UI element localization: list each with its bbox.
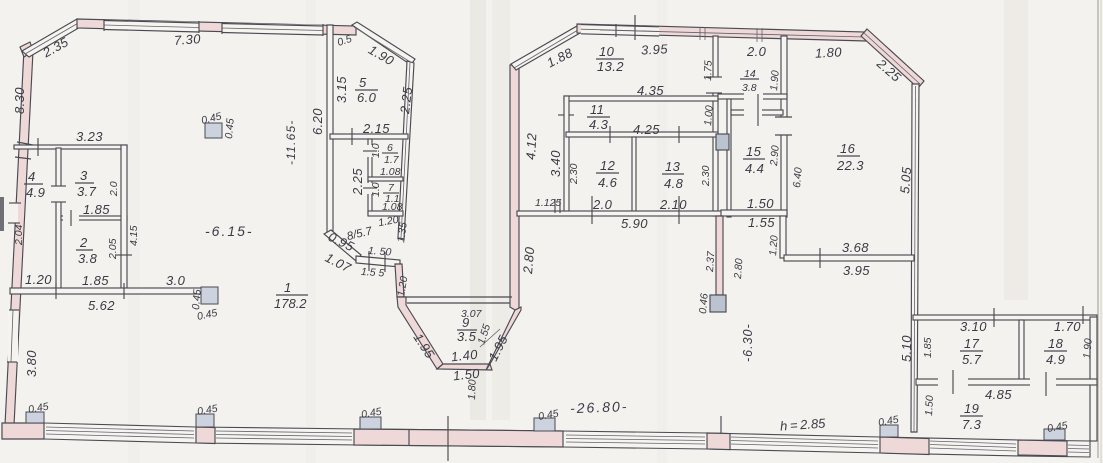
svg-text:8.30: 8.30	[12, 87, 27, 114]
svg-text:2.80: 2.80	[732, 258, 745, 280]
svg-text:5.62: 5.62	[88, 298, 115, 313]
svg-text:7.3: 7.3	[962, 417, 982, 432]
svg-text:4.6: 4.6	[598, 175, 618, 190]
svg-text:2.90: 2.90	[768, 145, 782, 168]
svg-text:1.55: 1.55	[748, 215, 775, 230]
svg-text:5.10: 5.10	[899, 335, 914, 362]
svg-text:3.8: 3.8	[742, 82, 757, 94]
svg-text:2: 2	[79, 235, 88, 250]
svg-text:1.80: 1.80	[815, 44, 843, 60]
svg-text:1.80: 1.80	[466, 379, 479, 400]
svg-text:14: 14	[744, 68, 756, 80]
svg-text:4.4: 4.4	[745, 161, 764, 176]
svg-text:11: 11	[590, 102, 604, 117]
svg-text:1.85: 1.85	[83, 202, 110, 217]
svg-text:16: 16	[840, 141, 856, 156]
svg-text:-6.30-: -6.30-	[741, 323, 755, 362]
svg-text:6.20: 6.20	[310, 108, 325, 135]
svg-text:1.75: 1.75	[702, 60, 715, 81]
svg-text:22.3: 22.3	[836, 158, 864, 173]
svg-text:3.68: 3.68	[842, 240, 869, 255]
svg-text:1.85: 1.85	[922, 337, 934, 358]
svg-text:1.50: 1.50	[923, 395, 936, 416]
svg-text:1.0: 1.0	[370, 182, 382, 197]
svg-text:178.2: 178.2	[274, 296, 307, 311]
svg-text:1.90: 1.90	[1081, 338, 1095, 360]
svg-text:2.30: 2.30	[700, 165, 712, 187]
svg-text:9: 9	[462, 315, 470, 330]
svg-text:0.45: 0.45	[223, 118, 237, 140]
svg-text:2.0: 2.0	[108, 181, 120, 197]
svg-text:3.8: 3.8	[78, 251, 98, 266]
svg-text:2.30: 2.30	[568, 163, 580, 185]
svg-text:4.85: 4.85	[985, 387, 1012, 402]
svg-text:2.04: 2.04	[13, 224, 25, 246]
svg-text:4: 4	[28, 169, 36, 184]
svg-text:3.23: 3.23	[76, 129, 103, 144]
svg-text:17: 17	[964, 336, 980, 351]
svg-text:2.37: 2.37	[704, 250, 718, 273]
svg-text:h = 2.85: h = 2.85	[780, 415, 827, 433]
svg-text:15: 15	[746, 144, 762, 159]
svg-text:3.15: 3.15	[334, 76, 349, 103]
svg-text:1.40: 1.40	[450, 347, 479, 365]
svg-text:1.20: 1.20	[25, 272, 52, 287]
svg-text:3.10: 3.10	[960, 319, 987, 334]
svg-text:4.35: 4.35	[637, 83, 664, 98]
svg-text:-26.80-: -26.80-	[570, 398, 629, 416]
svg-text:2.80: 2.80	[520, 246, 537, 275]
svg-text:3.80: 3.80	[24, 350, 39, 377]
svg-text:0.46: 0.46	[697, 293, 711, 315]
svg-text:1.5 5: 1.5 5	[361, 266, 385, 280]
svg-text:3.95: 3.95	[641, 41, 669, 57]
svg-text:1.00: 1.00	[702, 105, 716, 127]
svg-text:3.40: 3.40	[548, 150, 563, 177]
svg-text:-6.15-: -6.15-	[205, 223, 254, 239]
svg-text:13.2: 13.2	[597, 59, 624, 74]
svg-text:1.85: 1.85	[82, 273, 109, 288]
svg-text:6: 6	[387, 142, 393, 154]
svg-text:4.25: 4.25	[633, 122, 660, 137]
svg-text:6.0: 6.0	[357, 90, 377, 105]
svg-text:19: 19	[964, 401, 979, 416]
svg-text:6.40: 6.40	[791, 167, 805, 189]
svg-text:3.0: 3.0	[166, 273, 186, 288]
svg-text:2.05: 2.05	[107, 238, 119, 260]
svg-text:1.50: 1.50	[747, 196, 774, 211]
svg-text:2.10: 2.10	[659, 197, 687, 212]
svg-text:1.08: 1.08	[382, 201, 403, 213]
svg-text:13: 13	[665, 159, 681, 174]
svg-text:3.5: 3.5	[457, 329, 477, 344]
svg-text:5.05: 5.05	[897, 166, 914, 194]
svg-text:4.3: 4.3	[589, 117, 609, 132]
svg-text:10: 10	[599, 44, 615, 59]
svg-text:1.70: 1.70	[1054, 319, 1081, 334]
svg-text:4.8: 4.8	[664, 176, 684, 191]
svg-text:1: 1	[284, 280, 291, 295]
svg-text:1.7: 1.7	[384, 154, 400, 166]
svg-text:3.7: 3.7	[77, 184, 97, 199]
svg-text:18: 18	[1048, 336, 1064, 351]
svg-text:1.20: 1.20	[767, 235, 781, 257]
svg-text:3.95: 3.95	[843, 263, 870, 278]
svg-text:5.7: 5.7	[962, 352, 982, 367]
svg-text:5: 5	[359, 75, 367, 90]
svg-text:2.0: 2.0	[592, 197, 613, 212]
svg-text:2.25: 2.25	[350, 168, 365, 196]
svg-text:12: 12	[600, 158, 616, 173]
svg-text:4.15: 4.15	[128, 225, 140, 246]
svg-text:5.90: 5.90	[621, 216, 648, 231]
svg-text:4.9: 4.9	[1046, 352, 1065, 367]
svg-text:3: 3	[80, 168, 88, 183]
svg-text:1.08: 1.08	[380, 166, 401, 178]
svg-text:2.15: 2.15	[362, 121, 390, 136]
svg-text:4.12: 4.12	[523, 132, 539, 160]
svg-text:0.45: 0.45	[190, 289, 204, 311]
svg-text:7.30: 7.30	[173, 31, 201, 48]
svg-text:1. 50: 1. 50	[368, 245, 392, 259]
svg-text:4.9: 4.9	[26, 185, 45, 200]
svg-text:1.90: 1.90	[768, 70, 782, 92]
svg-text:-11.65-: -11.65-	[284, 119, 298, 165]
svg-text:1.125: 1.125	[535, 197, 561, 209]
svg-text:1.0: 1.0	[370, 143, 382, 158]
svg-text:2.0: 2.0	[746, 44, 767, 59]
